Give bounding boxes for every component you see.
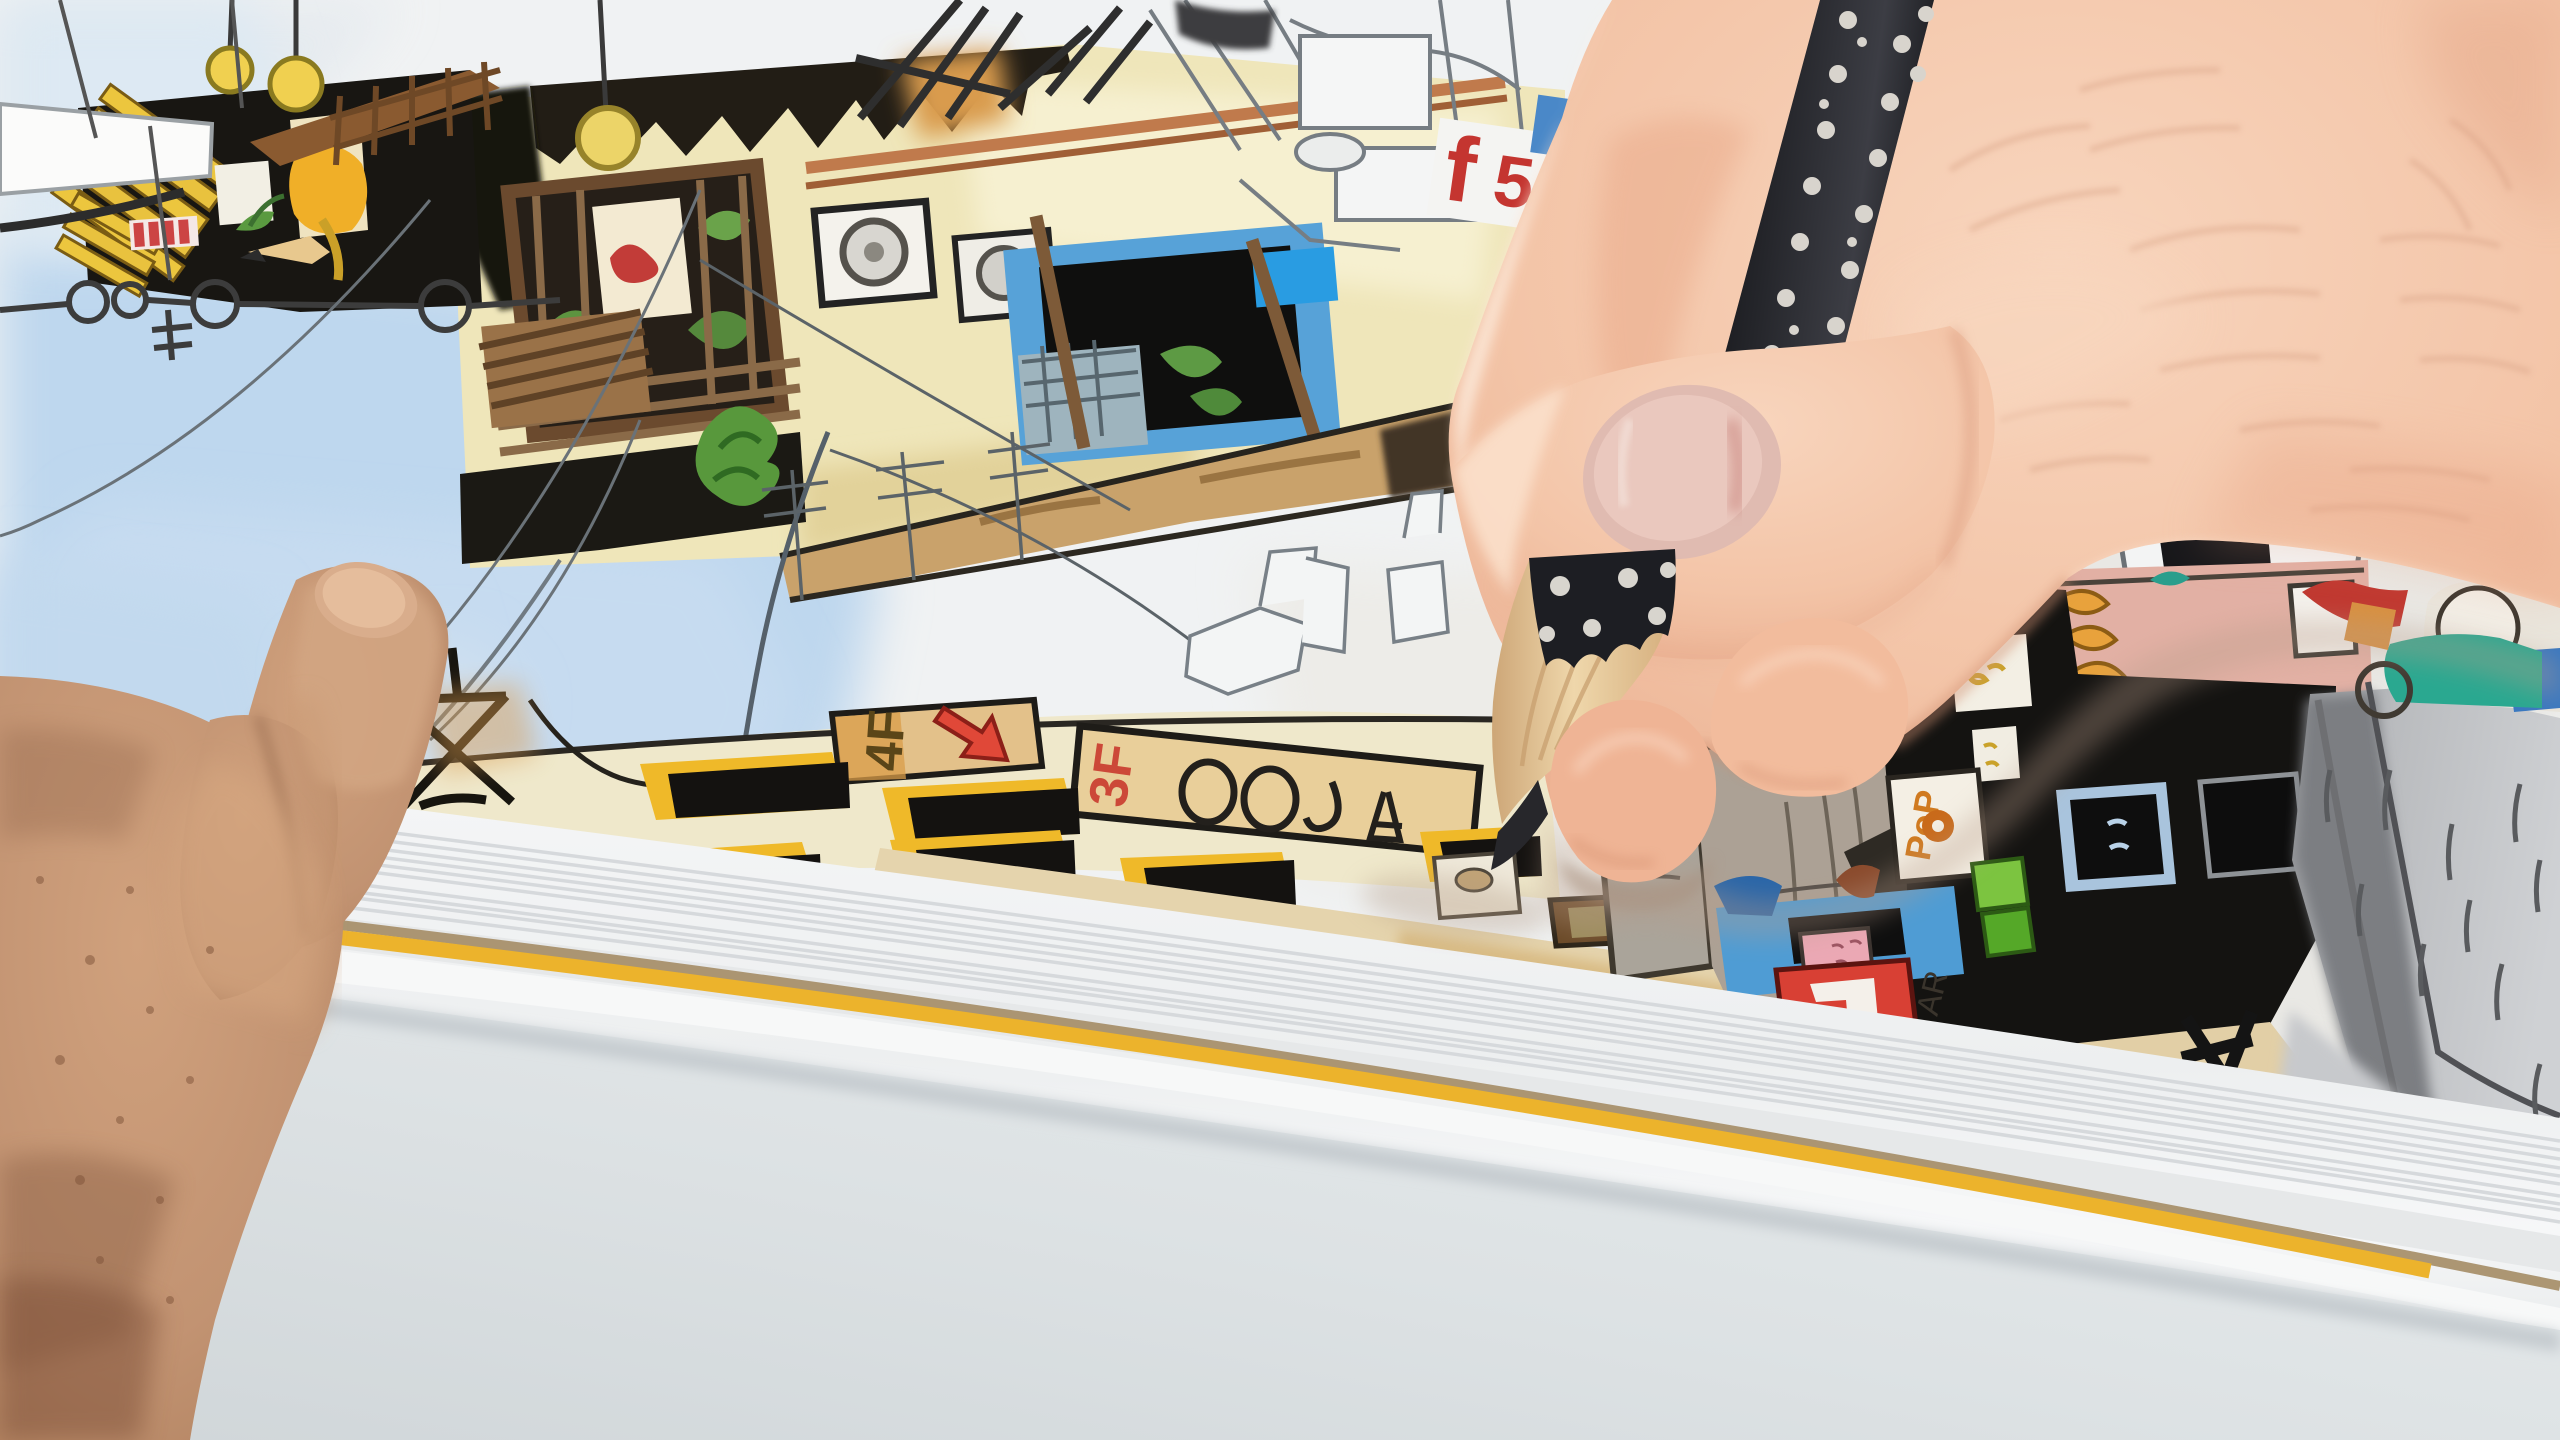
svg-text:4F: 4F — [855, 708, 917, 773]
svg-text:3F: 3F — [1078, 740, 1146, 811]
